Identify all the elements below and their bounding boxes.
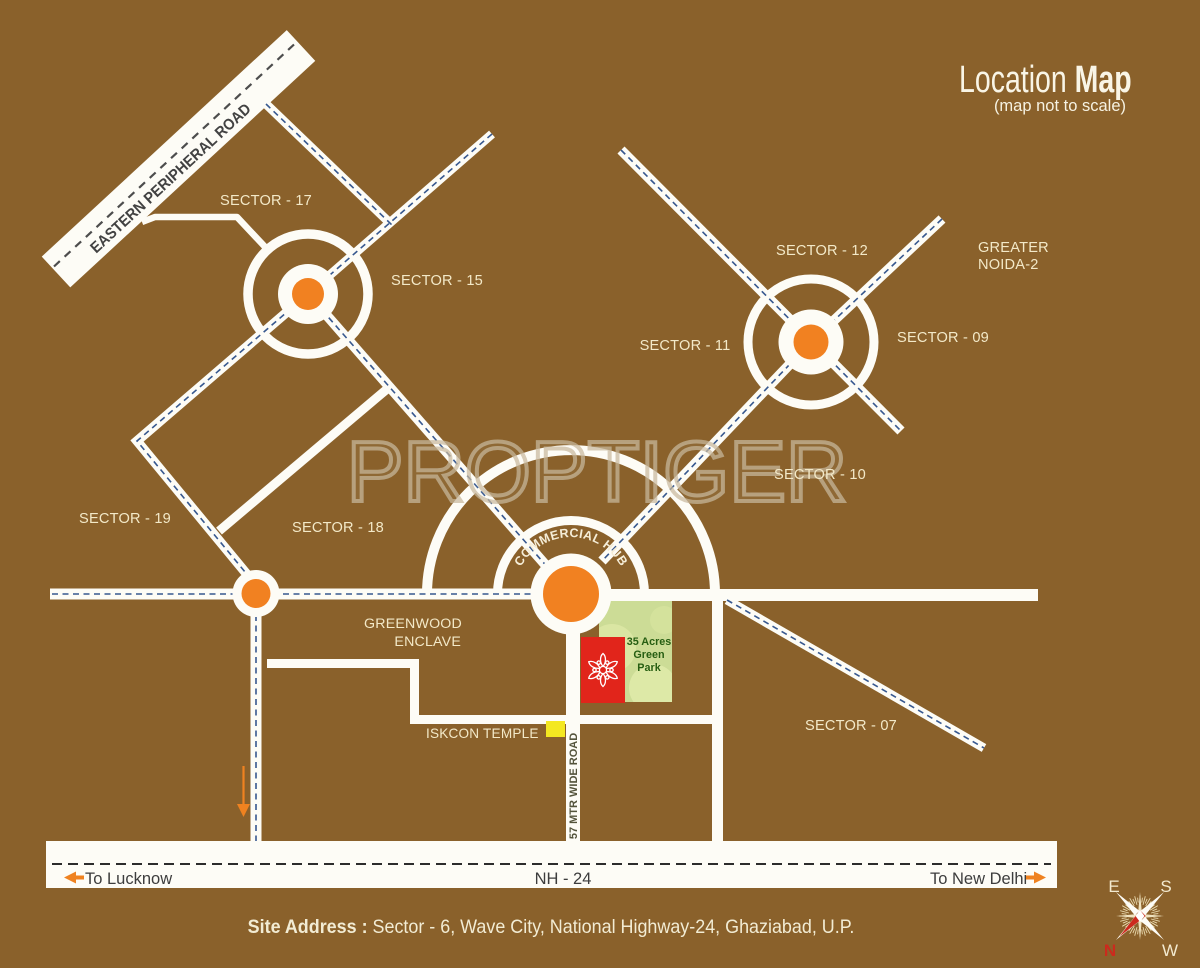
svg-text:SECTOR - 12: SECTOR - 12 (776, 243, 868, 259)
svg-text:S: S (1160, 877, 1171, 896)
svg-text:Green: Green (633, 649, 664, 661)
svg-text:57 MTR WIDE ROAD: 57 MTR WIDE ROAD (568, 733, 580, 839)
svg-text:ISKCON TEMPLE: ISKCON TEMPLE (426, 726, 539, 741)
svg-text:(map not to scale): (map not to scale) (994, 97, 1126, 115)
svg-text:To Lucknow: To Lucknow (85, 870, 172, 888)
svg-text:SECTOR - 09: SECTOR - 09 (897, 330, 989, 346)
svg-text:SECTOR - 17: SECTOR - 17 (220, 193, 312, 209)
svg-text:Location Map: Location Map (959, 59, 1132, 101)
svg-text:E: E (1108, 877, 1119, 896)
svg-text:NOIDA-2: NOIDA-2 (978, 257, 1039, 273)
svg-text:GREATER: GREATER (978, 240, 1049, 256)
svg-text:N: N (1104, 941, 1116, 960)
svg-text:Site Address : Sector - 6, Wav: Site Address : Sector - 6, Wave City, Na… (248, 915, 855, 937)
svg-text:SECTOR - 10: SECTOR - 10 (774, 467, 866, 483)
svg-text:W: W (1162, 941, 1178, 960)
svg-text:SECTOR - 15: SECTOR - 15 (391, 273, 483, 289)
svg-text:GREENWOOD: GREENWOOD (364, 616, 462, 632)
svg-text:NH - 24: NH - 24 (535, 870, 592, 888)
svg-text:PROPTIGER: PROPTIGER (347, 425, 848, 520)
svg-text:SECTOR - 11: SECTOR - 11 (640, 338, 731, 354)
svg-text:35 Acres: 35 Acres (627, 636, 672, 648)
svg-text:SECTOR - 18: SECTOR - 18 (292, 520, 384, 536)
svg-text:SECTOR - 19: SECTOR - 19 (79, 511, 171, 527)
svg-text:Park: Park (637, 662, 661, 674)
svg-text:To New Delhi: To New Delhi (930, 870, 1027, 888)
svg-text:ENCLAVE: ENCLAVE (394, 634, 461, 650)
svg-text:SECTOR - 07: SECTOR - 07 (805, 718, 897, 734)
